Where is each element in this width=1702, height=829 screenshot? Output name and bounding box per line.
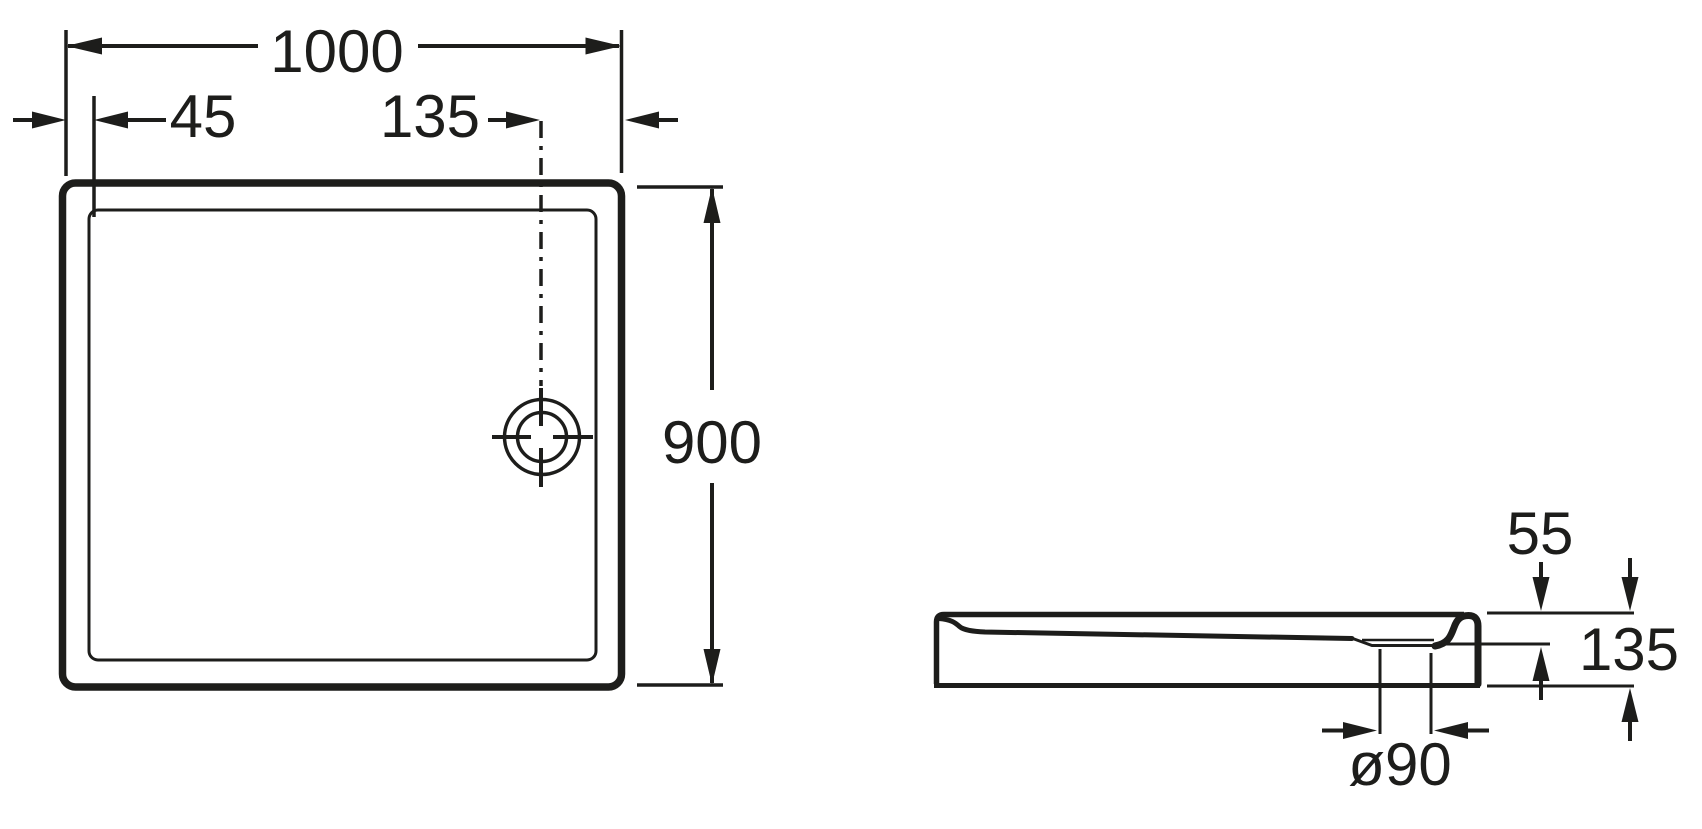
arrowhead-icon: [506, 112, 540, 129]
dim-label-basin-depth: 55: [1507, 500, 1574, 567]
drawing-canvas: 1000 45 135: [0, 0, 1702, 829]
arrowhead-left-icon: [66, 38, 102, 55]
plan-view: 1000 45 135: [13, 18, 762, 687]
arrowhead-down-icon: [1533, 577, 1550, 611]
side-view: 55 135 ø90: [934, 500, 1679, 798]
dim-drain-offset-group: 135: [380, 83, 678, 150]
arrowhead-outside-right-icon: [625, 112, 659, 129]
dim-label-drain-offset: 135: [380, 83, 480, 150]
profile-rim-and-right-edge: [1435, 616, 1478, 685]
arrowhead-right-icon: [586, 38, 622, 55]
drain-recess-lower-line: [1350, 638, 1441, 646]
arrowhead-icon: [94, 112, 128, 129]
dim-rim-inset-group: 45: [13, 83, 236, 217]
dim-label-rim-inset: 45: [170, 83, 237, 150]
arrowhead-outside-left-icon: [32, 112, 66, 129]
profile-basin-floor: [939, 619, 1352, 639]
arrowhead-up-icon: [1533, 647, 1550, 681]
tray-outer-edge: [63, 183, 622, 687]
tray-profile: [934, 615, 1480, 686]
dim-label-drain-diameter: ø90: [1348, 731, 1451, 798]
profile-top-and-left-edge: [937, 615, 1465, 685]
arrowhead-up-icon: [704, 187, 721, 223]
dim-depth-group: 900: [637, 187, 762, 685]
dim-label-width: 1000: [270, 18, 403, 85]
dim-height-group: 135: [1579, 558, 1679, 741]
drain-symbol: [492, 388, 593, 487]
arrowhead-down-icon: [704, 649, 721, 685]
dim-basin-depth-group: 55: [1507, 500, 1574, 700]
dim-label-depth: 900: [662, 409, 762, 476]
dim-width-group: 1000: [66, 18, 622, 176]
arrowhead-up-icon: [1622, 688, 1639, 722]
dim-drain-diameter-group: ø90: [1322, 649, 1489, 798]
arrowhead-down-icon: [1622, 577, 1639, 611]
dim-label-height: 135: [1579, 616, 1679, 683]
